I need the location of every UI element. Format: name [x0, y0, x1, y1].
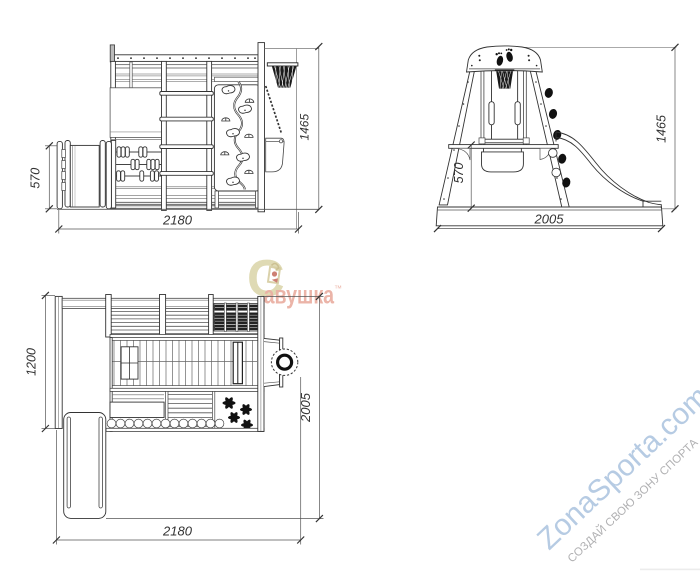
svg-text:2005: 2005 [298, 392, 313, 423]
svg-text:™: ™ [334, 284, 342, 293]
svg-text:570: 570 [452, 163, 466, 184]
svg-text:1200: 1200 [25, 348, 39, 376]
svg-text:570: 570 [29, 168, 43, 189]
svg-text:1465: 1465 [655, 115, 669, 143]
svg-text:авушка: авушка [264, 282, 335, 310]
svg-text:1465: 1465 [298, 114, 312, 141]
svg-text:2005: 2005 [534, 212, 565, 227]
svg-text:2180: 2180 [162, 524, 193, 539]
svg-text:2180: 2180 [162, 213, 193, 228]
